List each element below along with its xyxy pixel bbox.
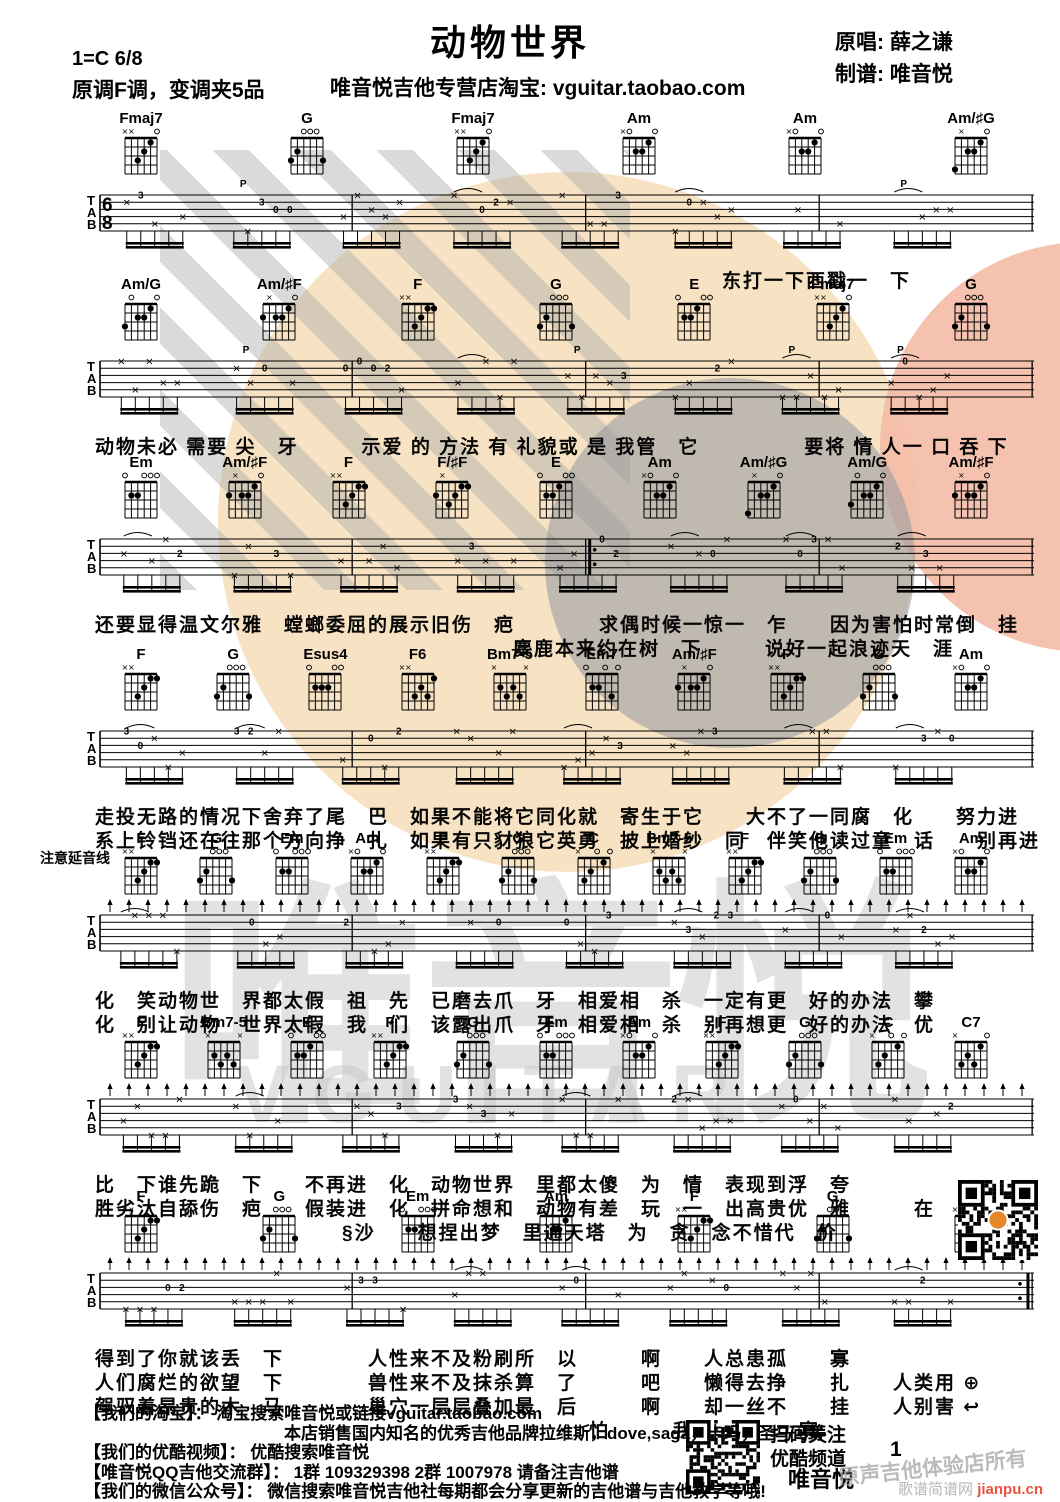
svg-text:2: 2	[344, 918, 350, 929]
chord-F: F××	[418, 832, 468, 896]
chord-diagram: ×	[864, 1030, 912, 1080]
chord-diagram	[781, 1030, 829, 1080]
chord-Em7: Em7	[577, 648, 627, 712]
chord-G: G	[946, 278, 996, 342]
svg-text:×: ×	[698, 932, 706, 943]
svg-text:×: ×	[670, 918, 678, 929]
svg-text:0: 0	[902, 356, 908, 367]
svg-text:2: 2	[493, 198, 499, 209]
chord-diagram	[532, 470, 580, 520]
svg-text:×: ×	[952, 847, 959, 856]
svg-text:×: ×	[933, 1109, 941, 1120]
svg-text:0: 0	[797, 549, 803, 560]
chord-F6: F6××	[393, 648, 443, 712]
chord-F: F××	[116, 1016, 166, 1080]
svg-text:×: ×	[695, 549, 703, 560]
svg-text:×: ×	[821, 1297, 829, 1308]
svg-text:P: P	[243, 345, 250, 356]
chord-diagram: ×	[221, 470, 269, 520]
svg-text:×: ×	[237, 1031, 244, 1040]
svg-text:0: 0	[496, 918, 502, 929]
svg-text:×: ×	[150, 1304, 158, 1315]
chord-name: F	[740, 832, 749, 846]
chord-name: Em	[280, 832, 303, 846]
svg-text:3: 3	[358, 1276, 364, 1287]
svg-text:0: 0	[687, 198, 693, 209]
chord-name: Am	[627, 112, 651, 126]
svg-text:×: ×	[620, 127, 627, 136]
svg-text:3: 3	[728, 910, 734, 921]
chord-name: Fmaj7	[811, 278, 854, 292]
tab-row-1: Fmaj7××GFmaj7××Am×Am×Am/♯G×TAB68×3×××300…	[0, 110, 1060, 294]
svg-text:×: ×	[586, 219, 594, 230]
svg-text:×: ×	[726, 1116, 734, 1127]
svg-text:×: ×	[353, 190, 361, 201]
svg-text:B: B	[87, 753, 96, 768]
svg-text:×: ×	[288, 378, 296, 389]
svg-text:×: ×	[834, 1123, 842, 1134]
svg-text:×: ×	[379, 542, 387, 553]
svg-text:×: ×	[260, 748, 268, 759]
chord-F: F××	[720, 832, 770, 896]
svg-text:P: P	[900, 179, 907, 190]
chord-name: Am/♯G	[740, 456, 788, 470]
chord-name: F	[782, 648, 791, 662]
chord-name: G	[827, 1190, 839, 1204]
svg-text:0: 0	[273, 205, 279, 216]
chord-diagram: ××	[200, 1030, 248, 1080]
chord-diagram: ××	[763, 662, 811, 712]
chord-diagram	[117, 292, 165, 342]
svg-text:×: ×	[837, 932, 845, 943]
svg-text:B: B	[87, 937, 96, 952]
svg-text:×: ×	[339, 212, 347, 223]
svg-text:2: 2	[385, 364, 391, 375]
svg-text:×: ×	[709, 1031, 716, 1040]
tab-staff: TAB×××02××××××33×××××0××××0××××××2×	[86, 1255, 1060, 1348]
svg-text:×: ×	[151, 219, 159, 230]
svg-text:×: ×	[232, 1102, 240, 1113]
site-watermark-name: 歌谱简谱网	[898, 1481, 973, 1498]
svg-text:×: ×	[510, 356, 518, 367]
chord-strip: EmAm/♯F×F××F/♯F×EAm×Am/♯G×Am/GAm/♯F×	[116, 454, 996, 520]
chord-name: G	[301, 112, 313, 126]
svg-text:0: 0	[599, 534, 605, 545]
svg-text:×: ×	[131, 385, 139, 396]
chord-name: Bm7-5	[487, 648, 533, 662]
chord-Fmaj7: Fmaj7××	[448, 112, 498, 176]
svg-text:×: ×	[778, 1102, 786, 1113]
svg-text:×: ×	[683, 748, 691, 759]
chord-Am: Am×	[531, 1190, 581, 1254]
svg-text:×: ×	[727, 205, 735, 216]
chord-diagram: ×	[670, 662, 718, 712]
chord-name: Esus4	[303, 648, 347, 662]
svg-text:×: ×	[159, 910, 167, 921]
svg-text:×: ×	[578, 392, 586, 403]
svg-text:×: ×	[602, 734, 610, 745]
lyric-line: 还要显得温文尔雅 螳螂委屈的展示旧伤 疤 求偶时候一惊一 乍 因为害怕时常倒 挂	[95, 614, 1060, 638]
svg-text:×: ×	[482, 356, 490, 367]
svg-text:×: ×	[650, 847, 657, 856]
svg-text:3: 3	[259, 198, 265, 209]
svg-text:0: 0	[249, 918, 255, 929]
svg-text:×: ×	[779, 1268, 787, 1279]
svg-text:3: 3	[686, 925, 692, 936]
svg-text:B: B	[87, 217, 96, 232]
chord-name: Am	[959, 648, 983, 662]
svg-text:3: 3	[469, 542, 475, 553]
svg-text:×: ×	[232, 364, 240, 375]
page-title: 动物世界	[430, 14, 590, 66]
svg-text:×: ×	[465, 1268, 473, 1279]
svg-text:×: ×	[671, 392, 679, 403]
chord-diagram	[283, 126, 331, 176]
svg-text:×: ×	[576, 939, 584, 950]
lyric-line: 得到了你就该丢 下 人性来不及粉刷所 以 啊 人总患孤 寡	[95, 1348, 1060, 1372]
site-watermark-url: jianpu.cn	[977, 1481, 1043, 1498]
chord-diagram	[947, 292, 995, 342]
svg-text:0: 0	[710, 549, 716, 560]
svg-text:×: ×	[367, 205, 375, 216]
chord-name: Am/G	[121, 278, 161, 292]
svg-text:B: B	[87, 1295, 96, 1310]
svg-text:×: ×	[952, 1031, 959, 1040]
chord-G: G	[191, 832, 241, 896]
svg-text:×: ×	[493, 1130, 501, 1141]
svg-text:0: 0	[262, 364, 268, 375]
svg-text:×: ×	[908, 563, 916, 574]
chord-G: G	[795, 832, 845, 896]
svg-text:×: ×	[932, 205, 940, 216]
svg-text:×: ×	[451, 1290, 459, 1301]
chord-diagram	[843, 470, 891, 520]
chord-diagram: ×	[947, 470, 995, 520]
chord-name: Fmaj7	[451, 112, 494, 126]
chord-name: Am	[959, 832, 983, 846]
svg-text:×: ×	[948, 932, 956, 943]
svg-text:0: 0	[793, 1094, 799, 1105]
svg-text:×: ×	[892, 762, 900, 773]
chord-name: E	[689, 278, 699, 292]
chord-name: Em	[544, 1016, 567, 1030]
svg-text:2: 2	[248, 726, 254, 737]
svg-text:×: ×	[820, 293, 827, 302]
svg-text:×: ×	[822, 726, 830, 737]
chord-diagram: ×	[947, 1030, 995, 1080]
svg-text:3: 3	[923, 549, 929, 560]
svg-text:×: ×	[128, 663, 135, 672]
svg-text:×: ×	[918, 212, 926, 223]
svg-text:×: ×	[887, 378, 895, 389]
svg-text:3: 3	[921, 734, 927, 745]
svg-text:×: ×	[494, 748, 502, 759]
svg-text:×: ×	[244, 226, 252, 237]
svg-text:0: 0	[343, 364, 349, 375]
chord-name: G	[814, 832, 826, 846]
chord-diagram: ×	[570, 846, 618, 896]
svg-text:3: 3	[396, 1102, 402, 1113]
tab-row-4: F××GEsus4F6××Bm7-5××Em7Am/♯F×F××GAm×TAB3…	[0, 646, 1060, 854]
chord-F: F××	[116, 832, 166, 896]
svg-text:2: 2	[715, 364, 721, 375]
svg-text:3: 3	[615, 190, 621, 201]
chord-name: Em	[884, 832, 907, 846]
svg-text:×: ×	[946, 1297, 954, 1308]
svg-text:×: ×	[558, 190, 566, 201]
tab-staff: TAB××××0××2××××00××3×3×23×0×××2××	[86, 897, 1060, 990]
svg-text:2: 2	[179, 1283, 185, 1294]
svg-text:×: ×	[405, 293, 412, 302]
svg-text:B: B	[87, 383, 96, 398]
svg-text:×: ×	[381, 762, 389, 773]
svg-text:×: ×	[173, 946, 181, 957]
chord-G: G	[282, 112, 332, 176]
chord-name: Am/♯G	[947, 112, 995, 126]
svg-text:×: ×	[727, 356, 735, 367]
chord-diagram	[301, 662, 349, 712]
svg-text:0: 0	[573, 1276, 579, 1287]
svg-text:×: ×	[262, 939, 270, 950]
svg-text:×: ×	[159, 378, 167, 389]
svg-text:×: ×	[161, 1130, 169, 1141]
svg-text:×: ×	[395, 198, 403, 209]
svg-text:×: ×	[669, 741, 677, 752]
chord-Am: Am×	[635, 456, 685, 520]
svg-text:×: ×	[708, 1276, 716, 1287]
chord-G: G	[208, 648, 258, 712]
svg-text:2: 2	[948, 1102, 954, 1113]
svg-text:×: ×	[751, 471, 758, 480]
svg-text:×: ×	[147, 1130, 155, 1141]
chord-name: F	[690, 1190, 699, 1204]
chord-name: E	[302, 1016, 312, 1030]
chord-Esus4: Esus4	[300, 648, 350, 712]
tab-staff: TAB68×3×××300P××××××02××××3×0××××××××P	[86, 177, 1060, 270]
svg-text:×: ×	[934, 726, 942, 737]
chord-FF: F/♯F×	[427, 456, 477, 520]
chord-name: F	[136, 832, 145, 846]
svg-text:×: ×	[588, 748, 596, 759]
chord-Bm7-5: Bm7-5××	[644, 832, 694, 896]
svg-text:×: ×	[398, 918, 406, 929]
chord-G: G	[854, 648, 904, 712]
svg-text:×: ×	[824, 534, 832, 545]
svg-text:×: ×	[454, 378, 462, 389]
chord-Am: Am×	[946, 832, 996, 896]
svg-text:0: 0	[138, 741, 144, 752]
chord-name: Am/G	[847, 456, 887, 470]
chord-strip: F××GEsus4F6××Bm7-5××Em7Am/♯F×F××GAm×	[116, 646, 996, 712]
svg-text:×: ×	[245, 1297, 253, 1308]
svg-text:×: ×	[491, 663, 498, 672]
chord-strip: Fmaj7××GFmaj7××Am×Am×Am/♯G×	[116, 110, 996, 176]
svg-text:×: ×	[778, 392, 786, 403]
chord-F: F××	[697, 1016, 747, 1080]
chord-name: G	[227, 648, 239, 662]
tab-row-5: F××GEmAm×F××GC×Bm7-5××F××GEmAm×TAB××××0×…	[0, 830, 1060, 1038]
svg-text:×: ×	[794, 205, 802, 216]
chord-diagram	[449, 1030, 497, 1080]
svg-text:×: ×	[507, 1109, 515, 1120]
svg-text:B: B	[87, 561, 96, 576]
svg-text:×: ×	[946, 205, 954, 216]
chord-E: E	[531, 456, 581, 520]
svg-text:×: ×	[178, 748, 186, 759]
svg-text:×: ×	[781, 925, 789, 936]
chord-diagram: ××	[449, 126, 497, 176]
chord-diagram	[255, 1204, 303, 1254]
svg-text:×: ×	[640, 471, 647, 480]
svg-text:×: ×	[460, 127, 467, 136]
chord-Am: Am×	[342, 832, 392, 896]
svg-text:2: 2	[920, 1276, 926, 1287]
chord-diagram: ×	[343, 846, 391, 896]
chord-name: G	[799, 1016, 811, 1030]
svg-text:×: ×	[807, 1268, 815, 1279]
chord-name: F6	[409, 648, 427, 662]
svg-text:3: 3	[606, 910, 612, 921]
chord-name: F	[385, 1016, 394, 1030]
svg-text:×: ×	[892, 925, 900, 936]
chord-diagram	[578, 662, 626, 712]
chord-diagram: ×	[615, 1030, 663, 1080]
chord-name: F	[438, 832, 447, 846]
svg-text:×: ×	[232, 471, 239, 480]
chord-diagram: ×	[947, 662, 995, 712]
svg-text:×: ×	[614, 1094, 622, 1105]
singer-credit: 原唱: 薛之谦	[835, 26, 953, 56]
svg-text:×: ×	[808, 726, 816, 737]
svg-text:P: P	[789, 345, 796, 356]
tab-staff: TAB×××××××××××33×3××××××2×××××0××××××2	[86, 1081, 1060, 1174]
tab-staff: TAB×××××××0×P0002×××××××××3P××2××××××P×0…	[86, 343, 1060, 436]
svg-text:×: ×	[684, 1094, 692, 1105]
svg-text:×: ×	[820, 1102, 828, 1113]
chord-Em: Em	[871, 832, 921, 896]
svg-text:×: ×	[287, 1297, 295, 1308]
chord-G: G	[531, 278, 581, 342]
capo-note: 原调F调，变调夹5品	[72, 74, 265, 104]
svg-text:×: ×	[286, 570, 294, 581]
chord-G: G	[254, 1190, 304, 1254]
chord-diagram	[796, 846, 844, 896]
chord-name: F	[344, 456, 353, 470]
chord-name: F	[717, 1016, 726, 1030]
chord-name: Am/♯F	[949, 456, 994, 470]
chord-diagram	[283, 1030, 331, 1080]
chord-diagram: ×	[532, 1204, 580, 1254]
svg-text:×: ×	[572, 1130, 580, 1141]
chord-diagram	[872, 846, 920, 896]
chord-E: E	[669, 278, 719, 342]
chord-F: F××	[393, 278, 443, 342]
svg-text:×: ×	[592, 371, 600, 382]
svg-text:×: ×	[117, 356, 125, 367]
svg-text:×: ×	[205, 1031, 212, 1040]
svg-text:×: ×	[713, 212, 721, 223]
chord-name: C7	[961, 1016, 980, 1030]
chord-name: G	[873, 648, 885, 662]
svg-text:×: ×	[343, 1283, 351, 1294]
chord-G: G	[808, 1190, 858, 1254]
svg-text:×: ×	[666, 1283, 674, 1294]
chord-diagram	[532, 1030, 580, 1080]
svg-text:×: ×	[231, 1297, 239, 1308]
svg-text:×: ×	[958, 127, 965, 136]
svg-text:×: ×	[905, 1116, 913, 1127]
svg-text:×: ×	[774, 663, 781, 672]
chord-F: F××	[324, 456, 374, 520]
svg-text:×: ×	[681, 663, 688, 672]
svg-text:×: ×	[452, 726, 460, 737]
svg-text:0: 0	[357, 356, 363, 367]
chord-Em: Em	[267, 832, 317, 896]
svg-text:×: ×	[891, 1094, 899, 1105]
chord-diagram: ×	[781, 126, 829, 176]
svg-text:×: ×	[586, 1130, 594, 1141]
chord-name: Em7	[586, 648, 618, 662]
chord-AmG: Am/♯G×	[739, 456, 789, 520]
chord-name: Am/♯F	[222, 456, 267, 470]
chord-diagram: ××	[698, 1030, 746, 1080]
chord-diagram: ××	[670, 1204, 718, 1254]
chord-diagram	[268, 846, 316, 896]
svg-text:×: ×	[792, 392, 800, 403]
chord-F: F××	[365, 1016, 415, 1080]
chord-diagram: ××	[645, 846, 693, 896]
chord-name: Am	[355, 832, 379, 846]
svg-text:0: 0	[368, 734, 374, 745]
svg-text:×: ×	[339, 755, 347, 766]
svg-text:×: ×	[337, 556, 345, 567]
svg-text:×: ×	[367, 1109, 375, 1120]
svg-text:×: ×	[274, 726, 282, 737]
chord-name: C	[883, 1016, 894, 1030]
svg-text:B: B	[87, 1121, 96, 1136]
svg-text:×: ×	[496, 392, 504, 403]
svg-text:×: ×	[466, 734, 474, 745]
svg-text:×: ×	[399, 1304, 407, 1315]
chord-C7: C7×	[946, 1016, 996, 1080]
key-signature: 1=C 6/8	[72, 48, 143, 71]
svg-text:×: ×	[699, 198, 707, 209]
svg-text:×: ×	[430, 847, 437, 856]
chord-Em: Em	[116, 456, 166, 520]
svg-text:×: ×	[712, 1116, 720, 1127]
chord-Em: Em	[531, 1016, 581, 1080]
chord-diagram	[192, 846, 240, 896]
svg-text:×: ×	[510, 556, 518, 567]
svg-text:×: ×	[680, 1268, 688, 1279]
svg-text:×: ×	[697, 726, 705, 737]
chord-diagram: ××	[117, 662, 165, 712]
chord-name: F	[136, 648, 145, 662]
svg-text:3: 3	[274, 549, 280, 560]
chord-diagram	[209, 662, 257, 712]
qr-code-channel	[958, 1180, 1038, 1260]
svg-text:×: ×	[558, 1094, 566, 1105]
svg-text:0: 0	[165, 1283, 171, 1294]
svg-text:×: ×	[936, 563, 944, 574]
tab-staff: TAB×××2××3××××××3××××02××0××03××2×3×	[86, 521, 1060, 614]
svg-text:×: ×	[276, 932, 284, 943]
chord-name: G	[512, 832, 524, 846]
svg-text:×: ×	[246, 1130, 254, 1141]
chord-diagram	[855, 662, 903, 712]
chord-diagram: ××	[394, 662, 442, 712]
svg-text:0: 0	[371, 364, 377, 375]
